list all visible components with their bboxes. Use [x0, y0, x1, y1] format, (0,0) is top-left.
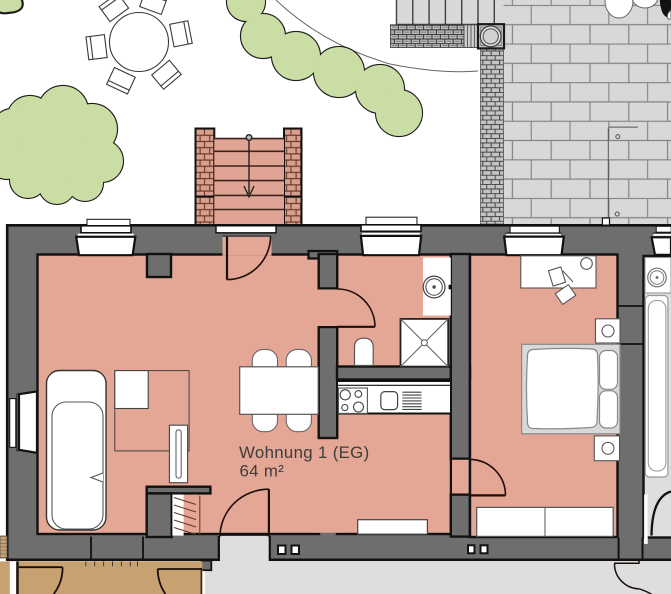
svg-text:64 m²: 64 m²	[240, 462, 285, 481]
svg-text:Wohnung 1 (EG): Wohnung 1 (EG)	[239, 443, 370, 462]
